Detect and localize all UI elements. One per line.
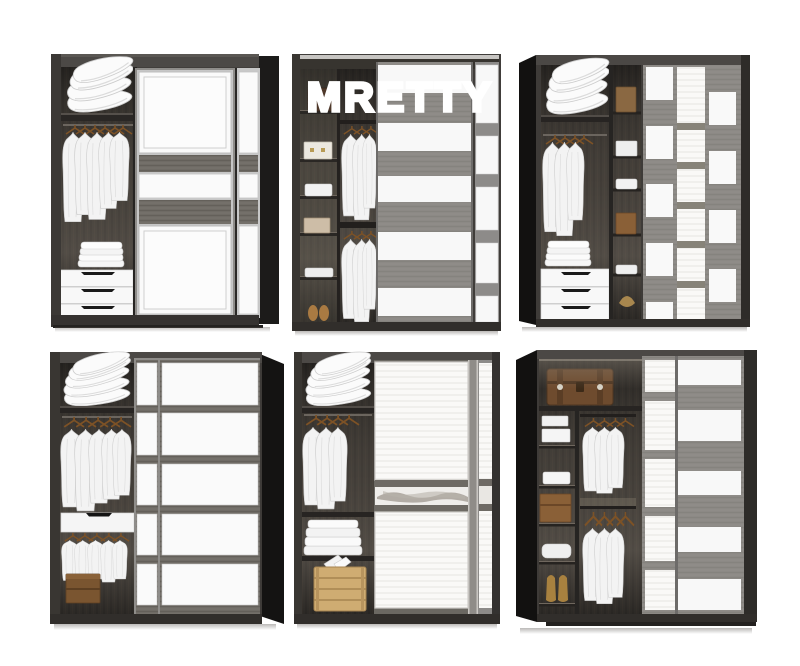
svg-text:MRETTY: MRETTY <box>307 74 494 120</box>
